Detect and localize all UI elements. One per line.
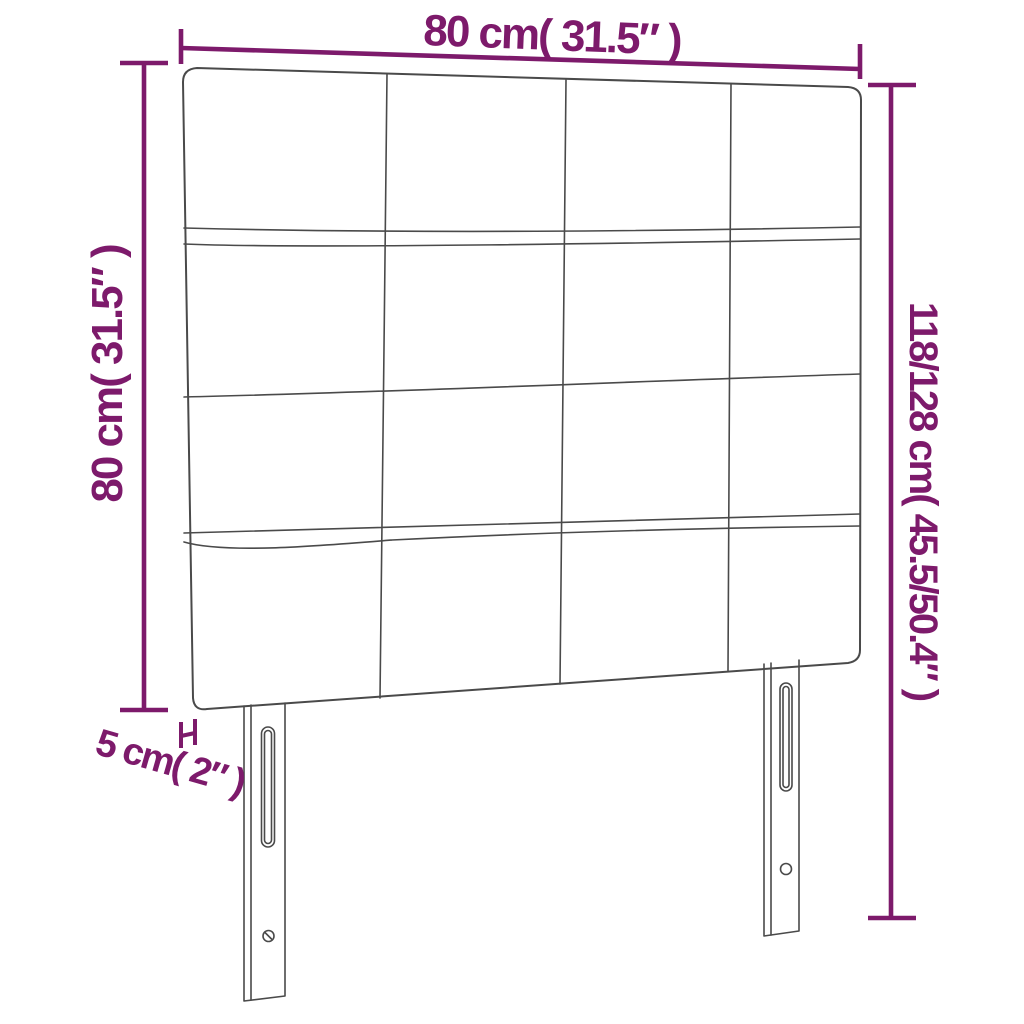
right-leg-slot-outer xyxy=(780,683,792,791)
product-dimension-diagram: 80 cm( 31.5″ ) 80 cm( 31.5″ ) 118/128 cm… xyxy=(0,0,1024,1024)
thickness-bar xyxy=(181,733,195,736)
right-leg-outline xyxy=(764,660,799,936)
left-height-label: 80 cm( 31.5″ ) xyxy=(82,174,134,574)
right-leg xyxy=(764,660,799,936)
left-leg-hole-lip xyxy=(265,933,272,940)
headboard-drawing xyxy=(183,68,861,1001)
right-leg-slot-inner xyxy=(783,687,789,788)
right-total-height-label: 118/128 cm( 45.5/50.4″ ) xyxy=(899,241,947,761)
headboard-outline xyxy=(183,68,861,709)
diagram-canvas xyxy=(0,0,1024,1024)
left-leg xyxy=(244,703,285,1001)
right-leg-hole xyxy=(781,864,792,875)
